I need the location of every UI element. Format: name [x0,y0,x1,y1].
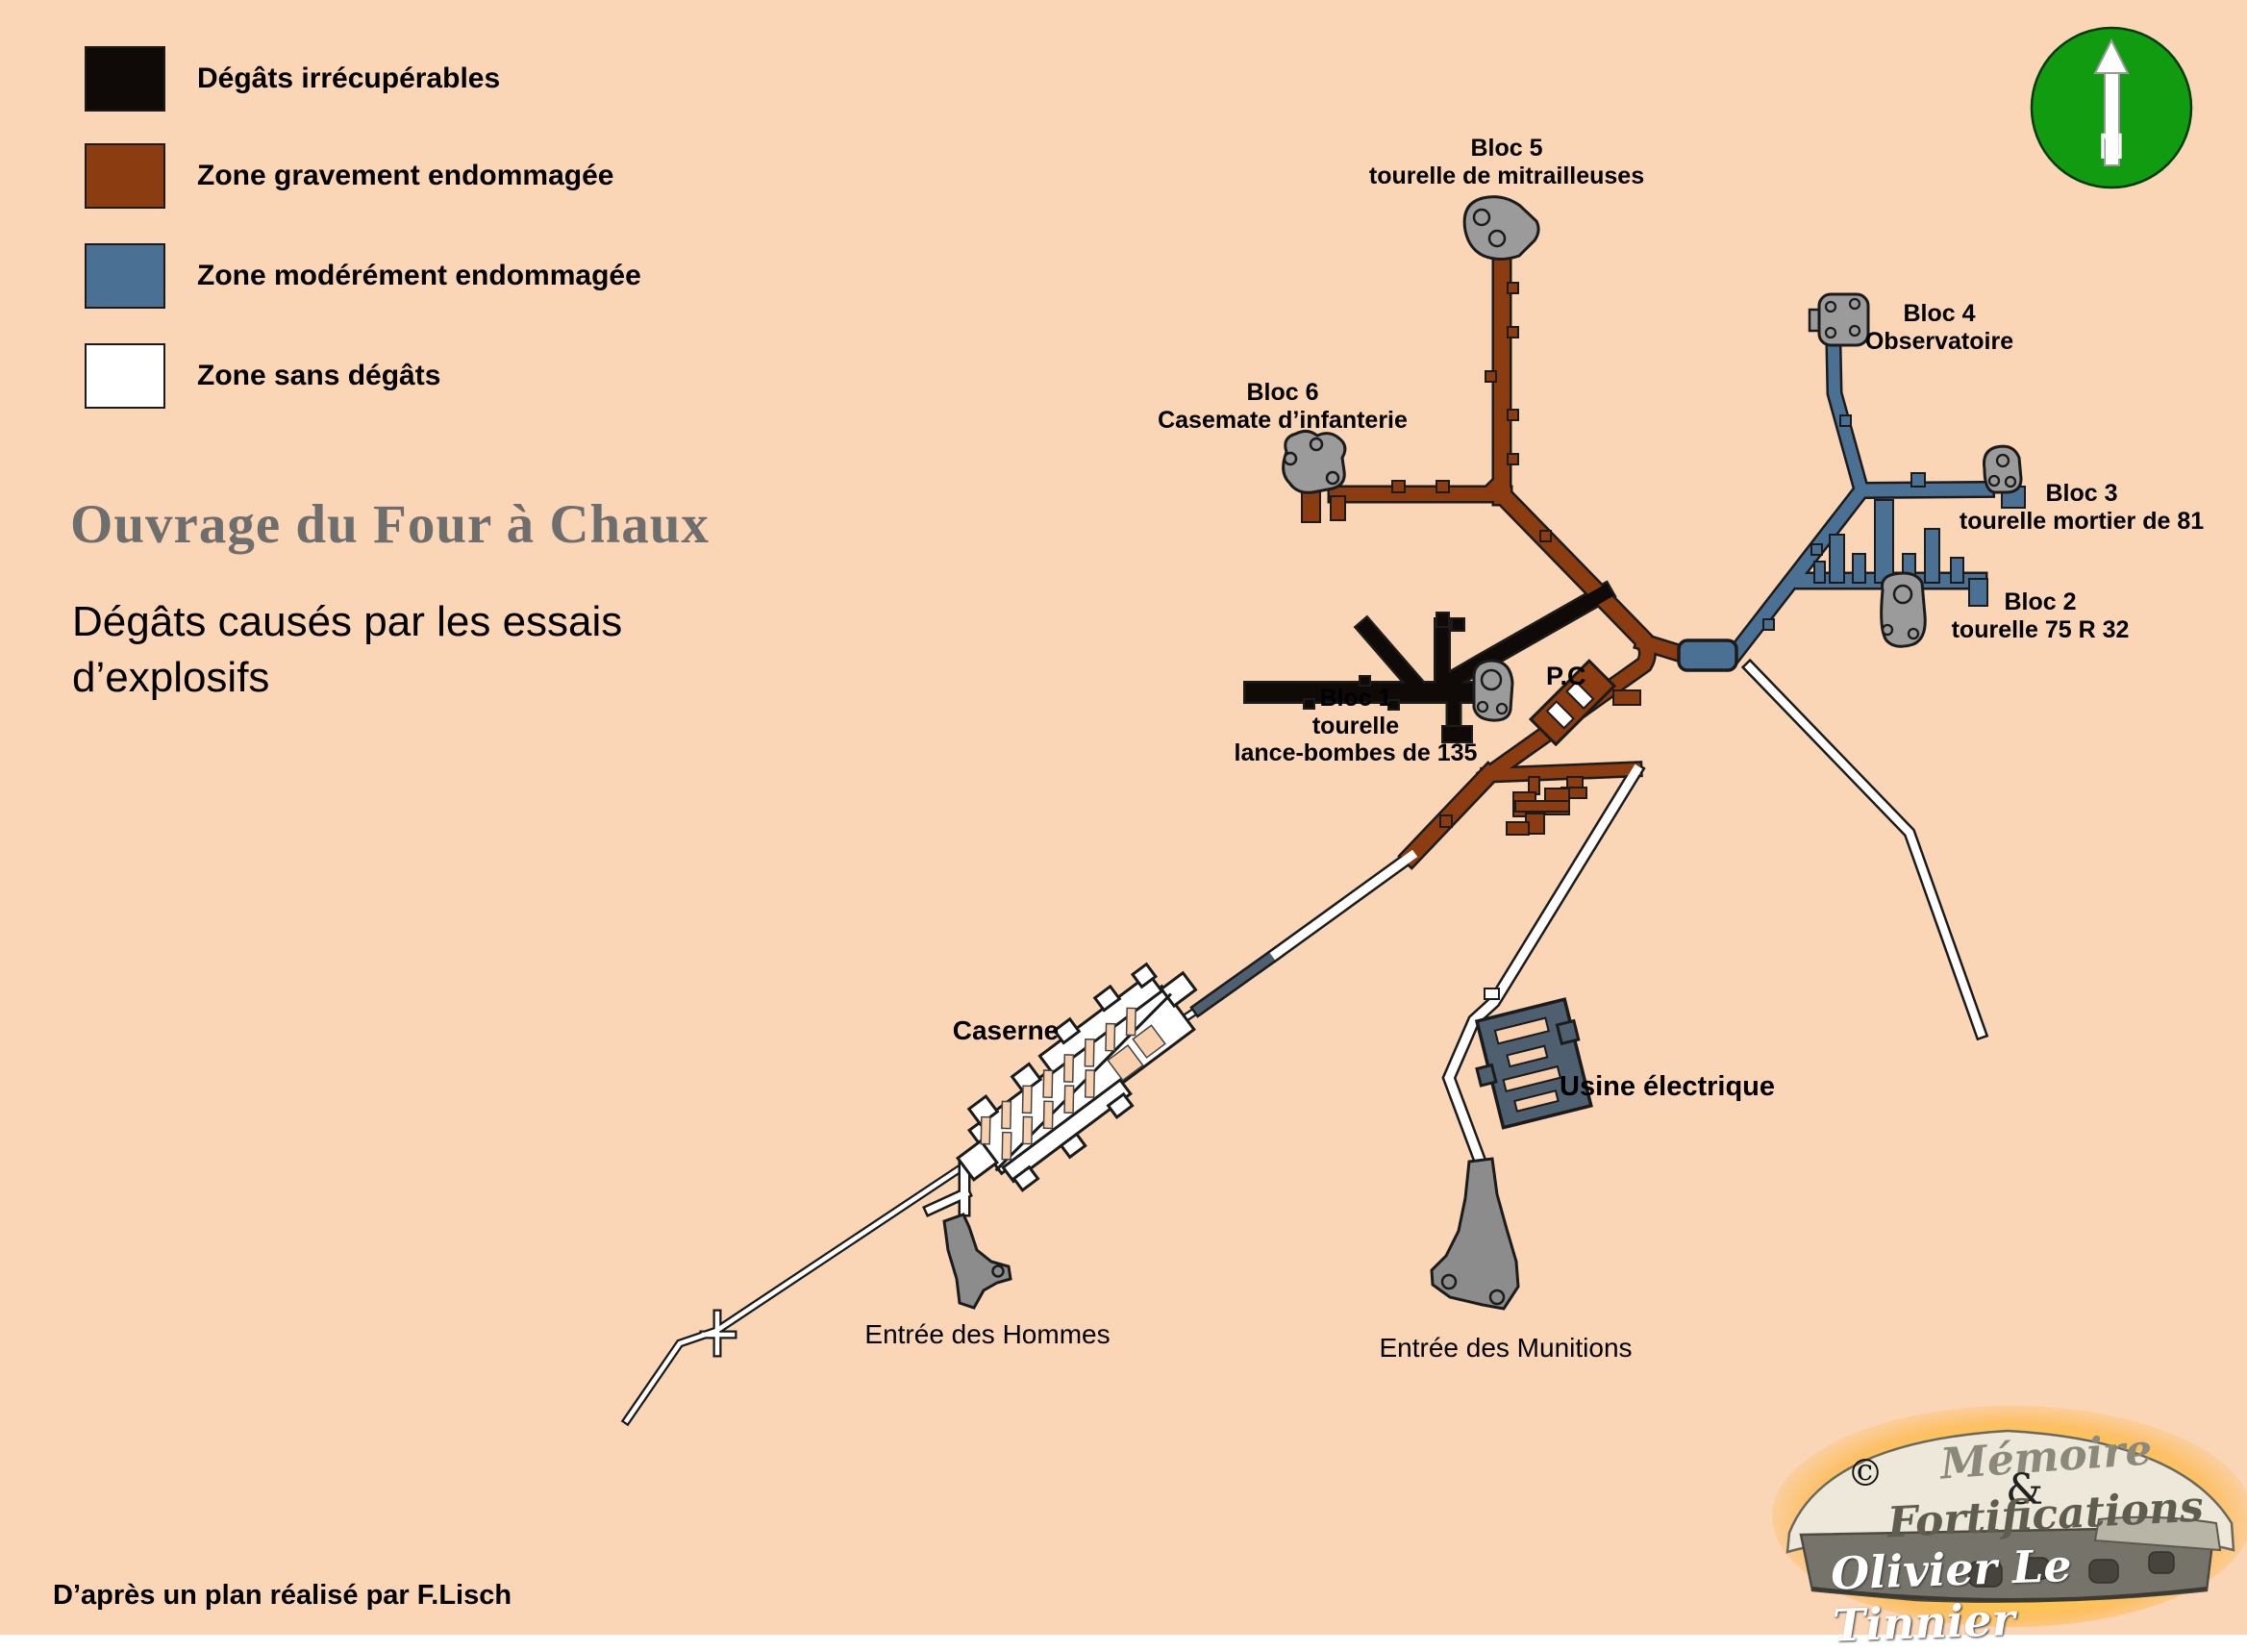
bloc4-name: Bloc 4 [1865,300,2013,328]
usine-electrique-structure [1465,998,1594,1130]
legend-row-moderate: Zone modérément endommagée [85,243,641,309]
bloc6-name: Bloc 6 [1158,379,1408,407]
label-pc: P.C [1546,662,1586,691]
logo-author: Olivier Le Tinnier [1830,1533,2247,1651]
legend-swatch-moderate [85,243,165,309]
page-title: Ouvrage du Four à Chaux [70,493,710,556]
north-label: N [2098,127,2124,168]
legend-swatch-severe [85,143,165,209]
bloc4-observatoire [1810,294,1868,345]
memoire-fortifications-logo: © Mémoire & Fortifications Olivier Le Ti… [1772,1406,2247,1627]
entree-munitions-structure [1432,1159,1518,1309]
label-entree-munitions: Entrée des Munitions [1379,1333,1632,1364]
bloc5-turret [1464,197,1538,260]
subtitle-line-1: Dégâts causés par les essais [72,594,622,650]
legend-label-moderate: Zone modérément endommagée [197,260,641,292]
bloc1-desc1: tourelle [1235,713,1478,740]
legend-label-none: Zone sans dégâts [197,360,440,392]
entree-hommes-structure [944,1214,1011,1308]
bloc1-name: Bloc 1 [1235,685,1478,713]
caserne-structure [930,947,1231,1212]
logo-copyright: © [1847,1452,1884,1494]
bloc2-desc: tourelle 75 R 32 [1952,616,2130,644]
bloc6-desc: Casemate d’infanterie [1158,407,1408,435]
bloc6-casemate [1284,431,1345,492]
blue-pill-gallery [1679,640,1736,670]
credit-text: D’après un plan réalisé par F.Lisch [53,1580,512,1612]
subtitle-line-2: d’explosifs [72,650,622,706]
label-usine: Usine électrique [1560,1071,1775,1103]
legend-row-none: Zone sans dégâts [85,343,440,409]
bloc4-desc: Observatoire [1865,328,2013,356]
bloc3-name: Bloc 3 [1960,480,2204,508]
bloc5-desc: tourelle de mitrailleuses [1369,163,1644,190]
label-bloc1: Bloc 1 tourelle lance-bombes de 135 [1235,685,1478,767]
label-bloc5: Bloc 5 tourelle de mitrailleuses [1369,135,1644,189]
page-subtitle: Dégâts causés par les essais d’explosifs [72,594,622,706]
map-page: Dégâts irrécupérables Zone gravement end… [0,0,2247,1635]
label-bloc4: Bloc 4 Observatoire [1865,300,2013,355]
bloc2-name: Bloc 2 [1952,588,2130,616]
bloc2-turret [1882,573,1926,646]
legend-swatch-none [85,343,165,409]
label-bloc6: Bloc 6 Casemate d’infanterie [1158,379,1408,434]
legend-label-irrecoverable: Dégâts irrécupérables [197,63,500,95]
label-bloc3: Bloc 3 tourelle mortier de 81 [1960,480,2204,535]
legend-label-severe: Zone gravement endommagée [197,160,613,192]
bloc3-desc: tourelle mortier de 81 [1960,508,2204,536]
legend-row-severe: Zone gravement endommagée [85,143,613,209]
label-entree-hommes: Entrée des Hommes [864,1319,1110,1350]
bloc1-desc2: lance-bombes de 135 [1235,739,1478,767]
legend-row-irrecoverable: Dégâts irrécupérables [85,46,500,112]
bloc5-name: Bloc 5 [1369,135,1644,163]
label-bloc2: Bloc 2 tourelle 75 R 32 [1952,588,2130,643]
legend-swatch-irrecoverable [85,46,165,112]
bloc1-turret [1474,661,1512,720]
label-caserne: Caserne [953,1015,1060,1046]
